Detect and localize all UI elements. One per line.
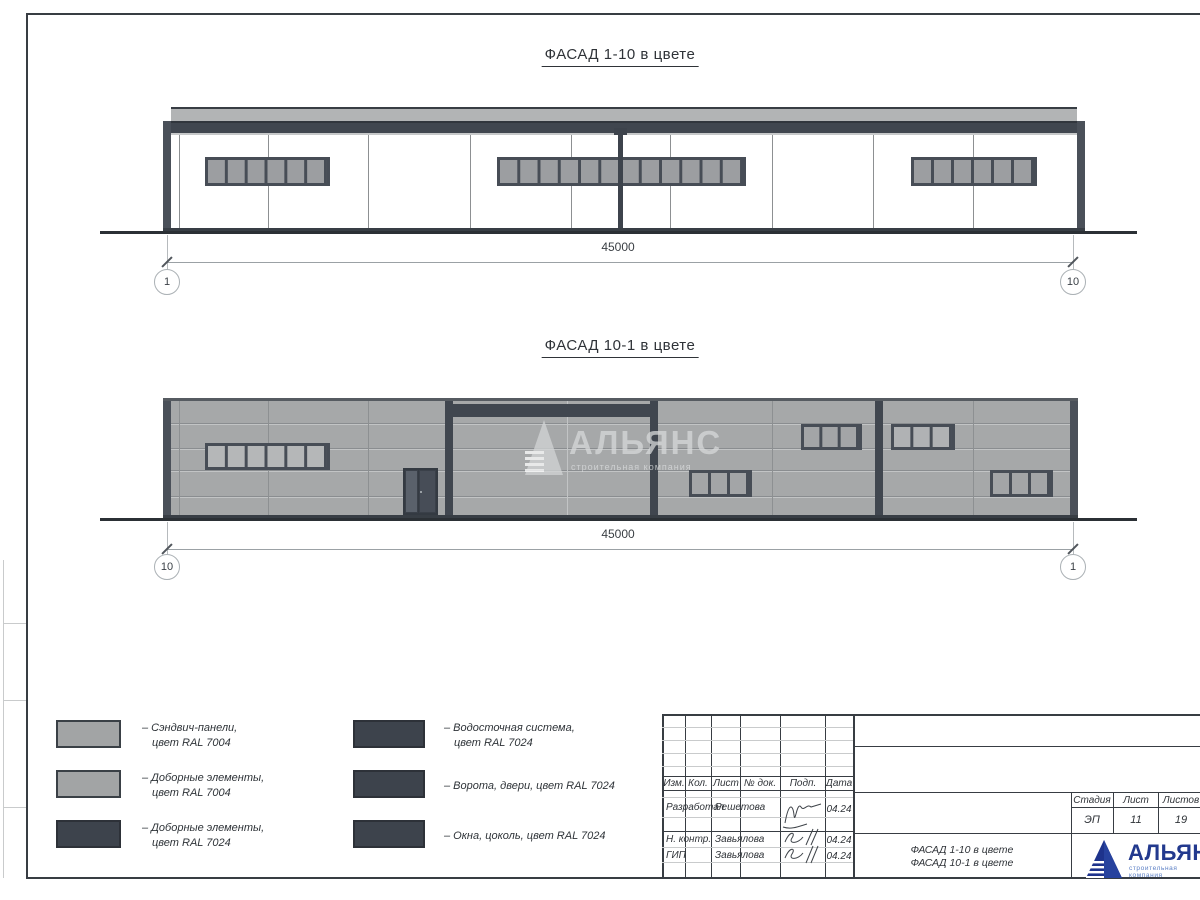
tb-border xyxy=(662,714,664,878)
dimension-value: 45000 xyxy=(601,240,634,254)
tb-col-kol: Кол. xyxy=(688,778,708,789)
small-window xyxy=(689,470,752,497)
legend-label: – Доборные элементы, xyxy=(142,771,264,786)
tb-role: Н. контр. xyxy=(666,834,711,845)
doc-title-line2: ФАСАД 10-1 в цвете xyxy=(911,857,1014,869)
panel-joint-line xyxy=(772,135,773,228)
margin-divider xyxy=(4,700,26,701)
panel-joint-line xyxy=(169,470,1072,471)
tb-grid-line xyxy=(853,792,1200,793)
window-glass xyxy=(208,446,327,467)
company-logo-subtitle: строительная компания xyxy=(1129,865,1200,879)
legend-label: – Сэндвич-панели, xyxy=(142,721,237,736)
ribbon-window xyxy=(911,157,1037,186)
margin-divider xyxy=(4,807,26,808)
axis-marker-left: 10 xyxy=(154,554,180,580)
tb-grid-line xyxy=(1113,792,1114,833)
tb-thin-row xyxy=(662,766,853,767)
facade-1-building xyxy=(163,107,1085,234)
facade-2-building xyxy=(163,398,1078,522)
legend-item: – Водосточная система, цвет RAL 7024 xyxy=(444,721,575,751)
entrance-door xyxy=(403,468,438,515)
tb-border xyxy=(662,714,1200,716)
ground-line xyxy=(100,231,1137,234)
corner-trim-left xyxy=(163,401,171,515)
signature-icon xyxy=(780,793,825,831)
dimension-value: 45000 xyxy=(601,527,634,541)
extension-line xyxy=(167,522,168,558)
frame-left xyxy=(26,13,28,879)
panel-joint-line xyxy=(973,401,974,515)
legend-swatch-ral7024 xyxy=(56,820,121,848)
tb-grid-line xyxy=(853,714,855,878)
legend-label: – Водосточная система, xyxy=(444,721,575,736)
tb-date: 04.24 xyxy=(826,851,851,862)
signature-icon xyxy=(780,843,825,867)
panel-joint-line xyxy=(368,135,369,228)
panel-joint-line xyxy=(470,135,471,228)
tb-grid-line xyxy=(853,746,1200,747)
dimension-line xyxy=(167,262,1074,263)
window-glass xyxy=(208,160,327,183)
margin-line xyxy=(3,560,4,878)
stamp-sheet-label: Лист xyxy=(1123,795,1149,806)
tb-date: 04.24 xyxy=(826,835,851,846)
panel-joint-line xyxy=(179,401,180,515)
window-glass xyxy=(993,473,1050,494)
stamp-sheets-label: Листов xyxy=(1163,795,1199,806)
tb-thin-row xyxy=(662,740,853,741)
extension-line xyxy=(1073,522,1074,558)
company-logo-triangle-icon xyxy=(1086,840,1122,878)
facade-1-title: ФАСАД 1-10 в цвете xyxy=(542,46,699,67)
extension-line xyxy=(167,235,168,271)
title-block: Изм. Кол. Лист № док. Подп. Дата Разрабо… xyxy=(662,714,1200,878)
pilaster xyxy=(650,401,658,515)
ribbon-window xyxy=(205,443,330,470)
panel-joint-line xyxy=(179,135,180,228)
drawing-sheet: ФАСАД 1-10 в цвете 45000 1 xyxy=(0,0,1200,900)
window-glass xyxy=(894,427,952,447)
downpipe xyxy=(618,133,623,228)
corner-trim-right xyxy=(1077,121,1085,228)
legend-label: цвет RAL 7024 xyxy=(454,736,575,751)
legend-swatch-ral7004 xyxy=(56,720,121,748)
tb-date: 04.24 xyxy=(826,804,851,815)
stamp-sheets-value: 19 xyxy=(1175,814,1187,826)
ribbon-window xyxy=(205,157,330,186)
legend-swatch-ral7004 xyxy=(56,770,121,798)
legend-label: – Окна, цоколь, цвет RAL 7024 xyxy=(444,829,606,844)
tb-col-podp: Подп. xyxy=(790,778,817,789)
window-glass xyxy=(914,160,1034,183)
legend-swatch-ral7024 xyxy=(353,720,425,748)
legend-item: – Доборные элементы, цвет RAL 7024 xyxy=(142,821,264,851)
facade-2-title: ФАСАД 10-1 в цвете xyxy=(542,337,699,358)
tb-name: Решетова xyxy=(715,802,765,813)
ground-line xyxy=(100,518,1137,521)
tb-grid-line xyxy=(853,833,1200,834)
tb-grid-line xyxy=(1071,792,1072,878)
door-leaf xyxy=(405,470,418,513)
axis-marker-right: 1 xyxy=(1060,554,1086,580)
legend-item: – Ворота, двери, цвет RAL 7024 xyxy=(444,779,615,794)
tb-grid-line xyxy=(662,776,853,777)
small-window xyxy=(891,424,955,450)
legend-label: – Доборные элементы, xyxy=(142,821,264,836)
tb-col-data: Дата xyxy=(826,778,852,789)
small-window xyxy=(990,470,1053,497)
pilaster xyxy=(445,401,453,515)
legend-item: – Окна, цоколь, цвет RAL 7024 xyxy=(444,829,606,844)
pilaster xyxy=(875,401,883,515)
legend-label: цвет RAL 7004 xyxy=(152,736,237,751)
tb-thin-row xyxy=(662,753,853,754)
dimension-line xyxy=(167,549,1074,550)
window-glass xyxy=(692,473,749,494)
small-window xyxy=(801,424,862,450)
corner-trim-right xyxy=(1070,401,1078,515)
legend-label: цвет RAL 7004 xyxy=(152,786,264,801)
doc-title-line1: ФАСАД 1-10 в цвете xyxy=(911,844,1014,856)
panel-joint-line xyxy=(169,496,1072,497)
frame-top xyxy=(26,13,1200,15)
legend-item: – Сэндвич-панели, цвет RAL 7004 xyxy=(142,721,237,751)
legend-label: цвет RAL 7024 xyxy=(152,836,264,851)
window-glass xyxy=(804,427,859,447)
margin-divider xyxy=(4,623,26,624)
company-logo-name: АЛЬЯНС xyxy=(1128,840,1200,866)
panel-joint-line xyxy=(873,135,874,228)
door-handle xyxy=(420,491,422,493)
stamp-stage-value: ЭП xyxy=(1084,814,1100,826)
corner-trim-left xyxy=(163,121,171,228)
tb-grid-line xyxy=(711,714,712,878)
gate-lintel-band xyxy=(453,404,650,417)
gate-seam-line xyxy=(567,401,568,515)
tb-grid-line xyxy=(662,790,853,791)
stamp-sheet-value: 11 xyxy=(1130,814,1141,826)
panel-joint-line xyxy=(772,401,773,515)
extension-line xyxy=(1073,235,1074,271)
axis-marker-right: 10 xyxy=(1060,269,1086,295)
stamp-stage-label: Стадия xyxy=(1073,795,1110,806)
tb-name: Завьялова xyxy=(715,850,764,861)
parapet-band xyxy=(171,109,1077,121)
tb-col-izm: Изм. xyxy=(663,778,684,789)
legend-label: – Ворота, двери, цвет RAL 7024 xyxy=(444,779,615,794)
legend-swatch-ral7024 xyxy=(353,820,425,848)
tb-col-doc: № док. xyxy=(744,778,776,789)
tb-name: Завьялова xyxy=(715,834,764,845)
tb-grid-line xyxy=(1071,807,1200,808)
tb-col-list: Лист xyxy=(713,778,739,789)
tb-thin-row xyxy=(662,727,853,728)
axis-marker-left: 1 xyxy=(154,269,180,295)
tb-grid-line xyxy=(1158,792,1159,833)
panel-joint-line xyxy=(368,401,369,515)
tb-role: ГИП xyxy=(666,850,686,861)
legend-item: – Доборные элементы, цвет RAL 7004 xyxy=(142,771,264,801)
legend-swatch-ral7024 xyxy=(353,770,425,798)
